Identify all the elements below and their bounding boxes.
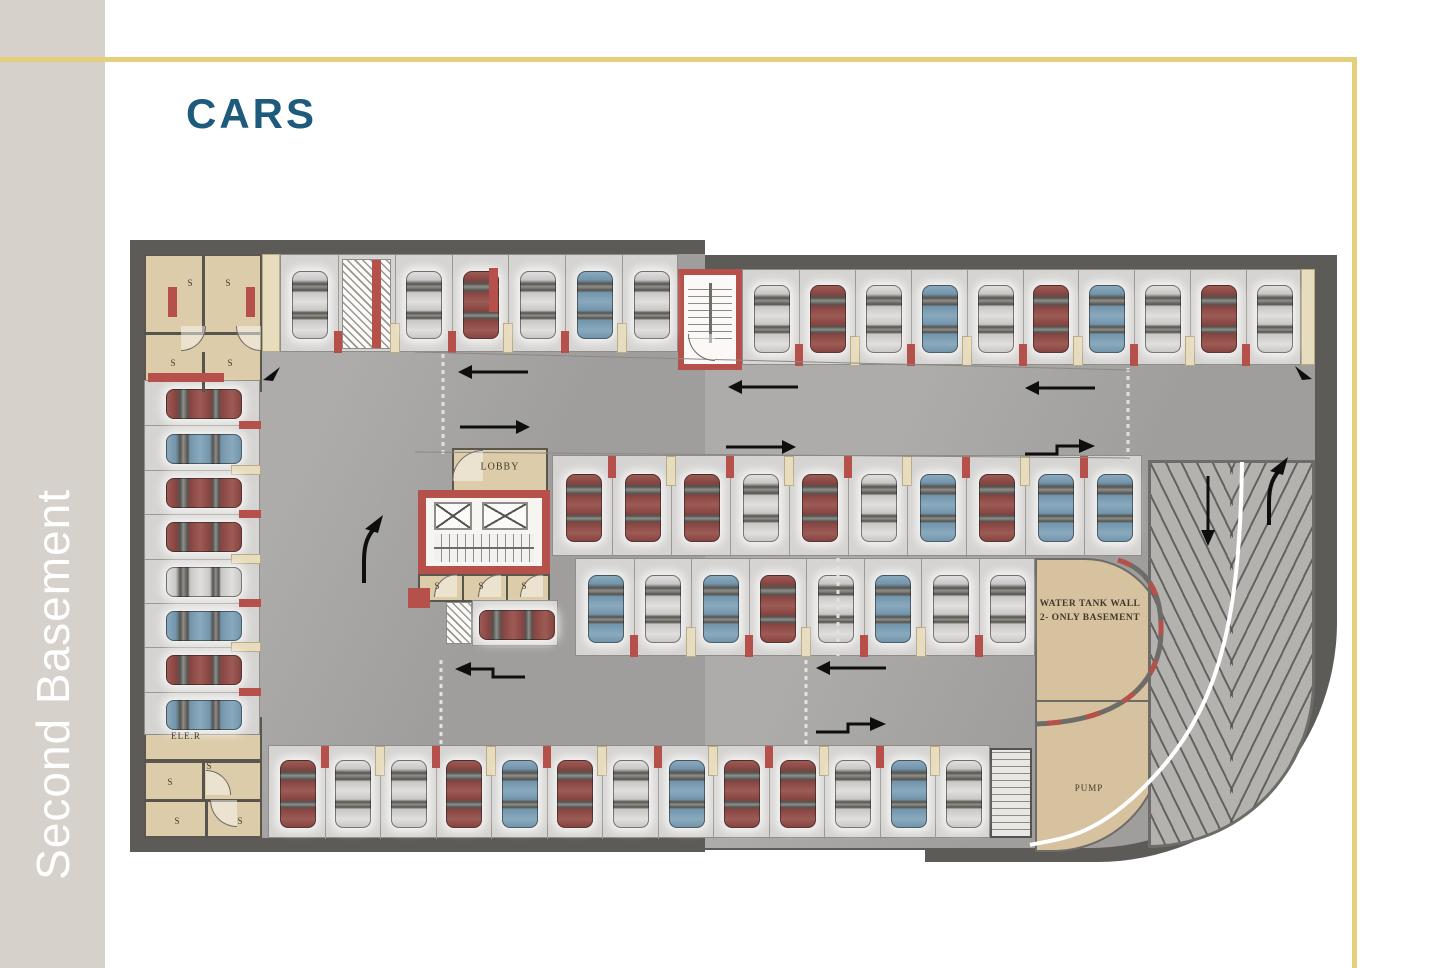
column-marker: [239, 599, 261, 607]
maroon-car-top-view: [684, 474, 720, 542]
maroon-car-top-view: [446, 760, 482, 828]
maroon-car-top-view: [566, 474, 602, 542]
blue-car-top-view: [1089, 285, 1125, 353]
elevator-shaft-icon: [482, 502, 528, 530]
storage-room-label: S: [187, 278, 192, 288]
wall-red-accent: [489, 268, 498, 312]
shaft-hatch: [446, 602, 472, 644]
silver-car-top-view: [978, 285, 1014, 353]
maroon-car-top-view: [625, 474, 661, 542]
blue-car-top-view: [703, 575, 739, 643]
column-tick: [916, 627, 926, 657]
column-marker: [765, 746, 773, 768]
column-marker: [860, 635, 868, 657]
wall-red-accent: [246, 287, 255, 317]
column-marker: [962, 456, 970, 478]
column-marker: [561, 331, 569, 353]
column-tick: [819, 746, 829, 776]
silver-car-top-view: [754, 285, 790, 353]
storage-wall: [462, 576, 464, 604]
column-tick: [375, 746, 385, 776]
maroon-car-top-view: [166, 655, 242, 685]
traffic-arrow-up-curve: [357, 515, 385, 585]
silver-car-top-view: [292, 271, 328, 339]
blue-car-top-view: [588, 575, 624, 643]
traffic-arrow-corner-sw: [263, 367, 281, 381]
wall-red-accent: [168, 287, 177, 317]
traffic-arrow-left-bent: [455, 657, 527, 681]
center-north-parking-row: [552, 455, 1142, 556]
column-marker: [844, 456, 852, 478]
column-marker: [1080, 456, 1088, 478]
traffic-arrow-down: [1200, 474, 1216, 546]
maroon-car-top-view: [166, 389, 242, 419]
lobby-side-stall: [472, 600, 558, 646]
column-marker: [654, 746, 662, 768]
silver-car-top-view: [613, 760, 649, 828]
column-tick: [902, 456, 912, 486]
storage-wall: [202, 761, 205, 799]
blue-car-top-view: [669, 760, 705, 828]
maroon-car-top-view: [166, 522, 242, 552]
north-west-parking-row: [280, 254, 678, 352]
maroon-car-top-view: [1033, 285, 1069, 353]
blue-car-top-view: [166, 700, 242, 730]
blue-car-top-view: [1038, 474, 1074, 542]
stall-end-cap: [262, 254, 280, 352]
column-tick: [930, 746, 940, 776]
maroon-car-top-view: [1201, 285, 1237, 353]
storage-wall: [205, 799, 208, 838]
stall-end-cap: [1301, 269, 1315, 365]
storage-room-label: S: [227, 358, 232, 368]
silver-car-top-view: [645, 575, 681, 643]
traffic-arrow-right-bent: [814, 712, 886, 736]
column-tick: [686, 627, 696, 657]
column-tick: [597, 746, 607, 776]
column-tick: [784, 456, 794, 486]
column-marker: [1130, 344, 1138, 366]
elevator-core-interior: [426, 498, 542, 566]
maroon-car-top-view: [810, 285, 846, 353]
maroon-car-top-view: [724, 760, 760, 828]
column-tick: [231, 465, 261, 475]
blue-car-top-view: [166, 434, 242, 464]
ventilation-hatch: [342, 259, 391, 349]
storage-room-label: S: [174, 816, 179, 826]
page-title: CARS: [186, 90, 317, 138]
maroon-car-top-view: [979, 474, 1015, 542]
column-marker: [239, 510, 261, 518]
column-marker: [795, 344, 803, 366]
column-tick: [390, 323, 400, 353]
water-tank-label-line1: WATER TANK WALL: [1040, 599, 1141, 609]
column-tick: [503, 323, 513, 353]
silver-car-top-view: [866, 285, 902, 353]
column-tick: [708, 746, 718, 776]
maroon-car-top-view: [557, 760, 593, 828]
column-tick: [1185, 336, 1195, 366]
traffic-arrow-left: [816, 660, 888, 676]
frame-top-line: [0, 57, 1357, 62]
elevator-shaft-icon: [434, 502, 472, 530]
storage-room-label: S: [167, 777, 172, 787]
storage-room-label: S: [434, 581, 439, 591]
column-tick: [231, 554, 261, 564]
water-tank-label-line2: 2- ONLY BASEMENT: [1040, 613, 1140, 623]
column-marker: [239, 688, 261, 696]
maroon-car-top-view: [802, 474, 838, 542]
north-east-parking-row: [742, 269, 1301, 365]
floor-plan: LOBBY WATER TANK WALL 2- ONLY BASEMENT P…: [130, 240, 1337, 862]
storage-room-label: S: [521, 581, 526, 591]
pump-label: PUMP: [1075, 783, 1104, 793]
blue-car-top-view: [166, 611, 242, 641]
traffic-arrow-left: [1025, 380, 1097, 396]
column-tick: [486, 746, 496, 776]
silver-car-top-view: [946, 760, 982, 828]
blue-car-top-view: [891, 760, 927, 828]
storage-room-label: S: [206, 761, 211, 771]
silver-car-top-view: [933, 575, 969, 643]
blue-car-top-view: [577, 271, 613, 339]
blue-car-top-view: [875, 575, 911, 643]
traffic-arrow-right-bent: [1023, 434, 1095, 458]
column-marker: [448, 331, 456, 353]
column-tick: [1020, 456, 1030, 486]
column-tick: [962, 336, 972, 366]
silver-car-top-view: [1145, 285, 1181, 353]
column-marker: [1019, 344, 1027, 366]
traffic-arrow-right: [458, 419, 530, 435]
column-tick: [231, 642, 261, 652]
column-marker: [334, 331, 342, 353]
storage-room-label: S: [225, 278, 230, 288]
column-tick: [617, 323, 627, 353]
silver-car-top-view: [743, 474, 779, 542]
column-marker: [432, 746, 440, 768]
traffic-arrow-right: [724, 439, 796, 455]
traffic-arrow-left: [458, 364, 530, 380]
storage-room-label: S: [170, 358, 175, 368]
maroon-car-top-view: [166, 478, 242, 508]
column-marker: [608, 456, 616, 478]
silver-car-top-view: [335, 760, 371, 828]
silver-car-top-view: [990, 575, 1026, 643]
traffic-arrow-corner-se: [1294, 366, 1312, 380]
traffic-arrow-left: [728, 379, 800, 395]
electrical-room-label: ELE.R: [171, 731, 201, 741]
silver-car-top-view: [391, 760, 427, 828]
column-marker: [321, 746, 329, 768]
core-column: [408, 588, 430, 608]
floor-name-label: Second Basement: [26, 489, 80, 880]
column-marker: [543, 746, 551, 768]
storage-wall: [202, 254, 205, 334]
silver-car-top-view: [861, 474, 897, 542]
column-marker: [630, 635, 638, 657]
wall-step-notch: [705, 850, 925, 862]
south-parking-row: [268, 745, 990, 838]
silver-car-top-view: [520, 271, 556, 339]
stair-rail: [434, 547, 534, 549]
column-marker: [745, 635, 753, 657]
maroon-car-top-view: [479, 610, 555, 640]
silver-car-top-view: [166, 567, 242, 597]
column-marker: [876, 746, 884, 768]
silver-car-top-view: [634, 271, 670, 339]
second-basement-sidebar: Second Basement: [0, 0, 105, 968]
column-marker: [726, 456, 734, 478]
wall-red-accent: [372, 260, 381, 348]
column-marker: [239, 421, 261, 429]
column-tick: [1073, 336, 1083, 366]
column-marker: [907, 344, 915, 366]
maroon-car-top-view: [760, 575, 796, 643]
wall-red-accent: [148, 373, 224, 382]
blue-car-top-view: [1097, 474, 1133, 542]
blue-car-top-view: [920, 474, 956, 542]
frame-right-line: [1352, 57, 1357, 968]
maroon-car-top-view: [780, 760, 816, 828]
west-parking-column: [144, 380, 260, 735]
column-marker: [975, 635, 983, 657]
silver-car-top-view: [1257, 285, 1293, 353]
traffic-arrow-up-curve: [1262, 457, 1290, 527]
column-tick: [850, 336, 860, 366]
silver-car-top-view: [818, 575, 854, 643]
blue-car-top-view: [502, 760, 538, 828]
storage-room-label: S: [478, 581, 483, 591]
lobby-label: LOBBY: [481, 462, 520, 473]
storage-wall: [144, 799, 262, 802]
silver-car-top-view: [406, 271, 442, 339]
column-tick: [666, 456, 676, 486]
column-marker: [1242, 344, 1250, 366]
column-tick: [801, 627, 811, 657]
storage-room-label: S: [237, 816, 242, 826]
maroon-car-top-view: [280, 760, 316, 828]
south-stairs: [990, 748, 1032, 838]
storage-wall: [202, 352, 205, 392]
center-south-parking-row: [575, 558, 1035, 656]
silver-car-top-view: [835, 760, 871, 828]
blue-car-top-view: [922, 285, 958, 353]
